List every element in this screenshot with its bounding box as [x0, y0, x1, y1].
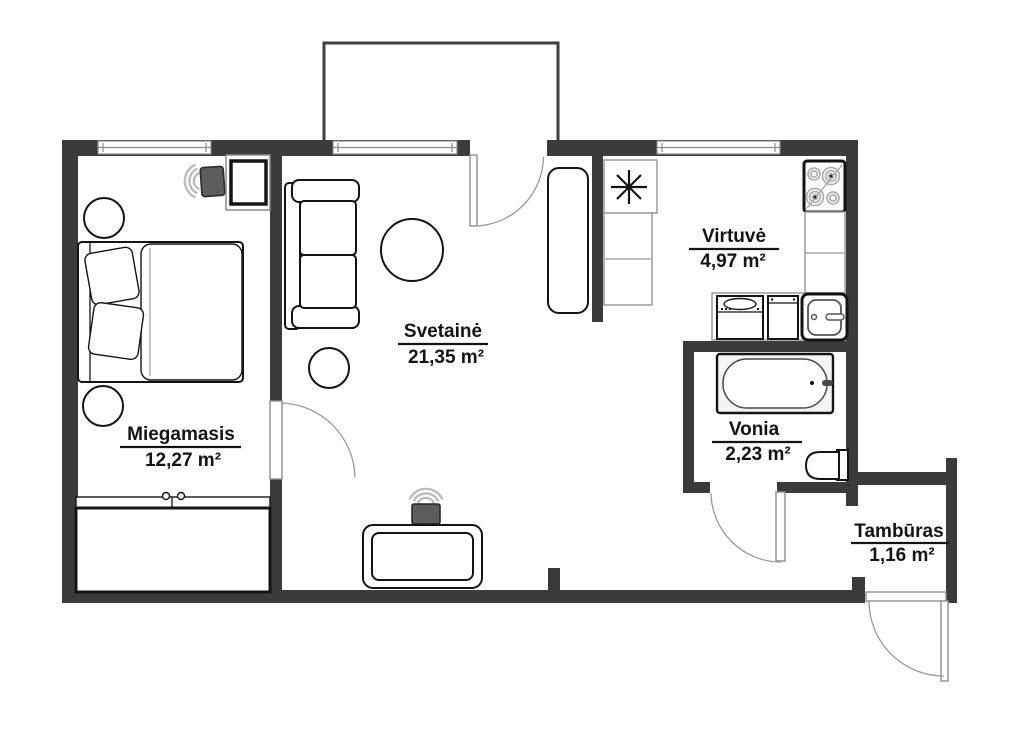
room-area: 1,16 m² [869, 545, 934, 566]
sofa-cushion [300, 201, 356, 255]
room-name: Miegamasis [127, 424, 235, 445]
room-label-virtuve: Virtuvė 4,97 m² [689, 226, 779, 272]
kitchen-sink [802, 294, 847, 340]
wardrobe [76, 493, 270, 593]
entrance-door [866, 592, 948, 681]
wall-bathroom-top [683, 341, 858, 352]
floor-plan: Miegamasis 12,27 m² Svetainė 21,35 m² Vi… [0, 0, 1024, 729]
wall-bathroom-bottom-right [777, 482, 858, 493]
room-name: Virtuvė [702, 226, 766, 247]
burner [823, 168, 840, 185]
under-sink-cabinet [768, 296, 798, 339]
sofa-armrest [292, 180, 359, 202]
room-name: Svetainė [404, 321, 482, 342]
sink-drain [812, 315, 817, 320]
room-area: 4,97 m² [700, 251, 765, 272]
living-tv [410, 489, 443, 526]
tv-icon [200, 166, 225, 197]
wall-stub-living [548, 568, 560, 592]
room-label-svetaine: Svetainė 21,35 m² [398, 321, 488, 368]
side-table [226, 155, 270, 210]
tall-cabinet [548, 168, 588, 313]
pillow [88, 302, 145, 360]
windows [98, 141, 780, 154]
bedroom-door [270, 401, 355, 479]
tv-signal-arcs-icon [418, 498, 434, 503]
wall-bedroom-upper [270, 156, 282, 402]
wall-vestibule-top [856, 472, 957, 485]
stool [309, 348, 349, 388]
room-area: 2,23 m² [725, 444, 790, 465]
bedroom-window [98, 141, 211, 154]
burner [807, 189, 824, 206]
room-label-miegamasis: Miegamasis 12,27 m² [120, 424, 241, 471]
room-label-tamburas: Tambūras 1,16 m² [851, 521, 949, 566]
wall-vestibule-right [946, 458, 957, 603]
stool [84, 198, 124, 238]
faucet-icon [826, 314, 844, 320]
blanket [141, 244, 242, 380]
living-furniture [285, 168, 588, 588]
stool [83, 386, 123, 426]
sofa [285, 180, 359, 329]
bedroom-furniture [76, 155, 270, 592]
bathtub [717, 354, 833, 413]
sofa-armrest [292, 306, 359, 328]
balcony-door-opening [470, 140, 547, 156]
room-area: 21,35 m² [408, 347, 484, 368]
living-window [333, 141, 457, 154]
bed [78, 242, 243, 382]
kitchen-cabinet [604, 213, 652, 305]
tub-drain [810, 381, 814, 385]
wall-bedroom-lower [270, 478, 282, 590]
balcony-outline [324, 43, 558, 144]
balcony-door [470, 155, 544, 226]
wardrobe-handle [178, 493, 185, 500]
round-table [381, 219, 443, 281]
room-name: Tambūras [854, 521, 943, 542]
faucet-icon [822, 380, 833, 386]
wall-kitchen-partition [592, 156, 603, 322]
pillow [84, 246, 140, 306]
room-label-vonia: Vonia 2,23 m² [712, 419, 802, 465]
wall-bathroom-left [683, 341, 694, 493]
toilet [806, 450, 848, 480]
room-area: 12,27 m² [145, 450, 221, 471]
kitchen-window [657, 141, 780, 154]
tv-icon [412, 504, 440, 524]
fridge [604, 160, 657, 213]
bedroom-tv [185, 165, 225, 198]
tv-signal-arcs-icon [194, 173, 199, 189]
sofa-cushion [300, 255, 356, 308]
wall-stub-entry [852, 577, 865, 592]
wall-bathroom-bottom-left [683, 482, 710, 493]
room-name: Vonia [729, 419, 780, 440]
bathroom-door [711, 492, 785, 562]
wardrobe-handle [163, 493, 170, 500]
tv-stand [363, 525, 482, 588]
washing-machine [717, 296, 763, 339]
floor-plan-drawing: Miegamasis 12,27 m² Svetainė 21,35 m² Vi… [0, 0, 1024, 729]
stove [804, 161, 845, 212]
